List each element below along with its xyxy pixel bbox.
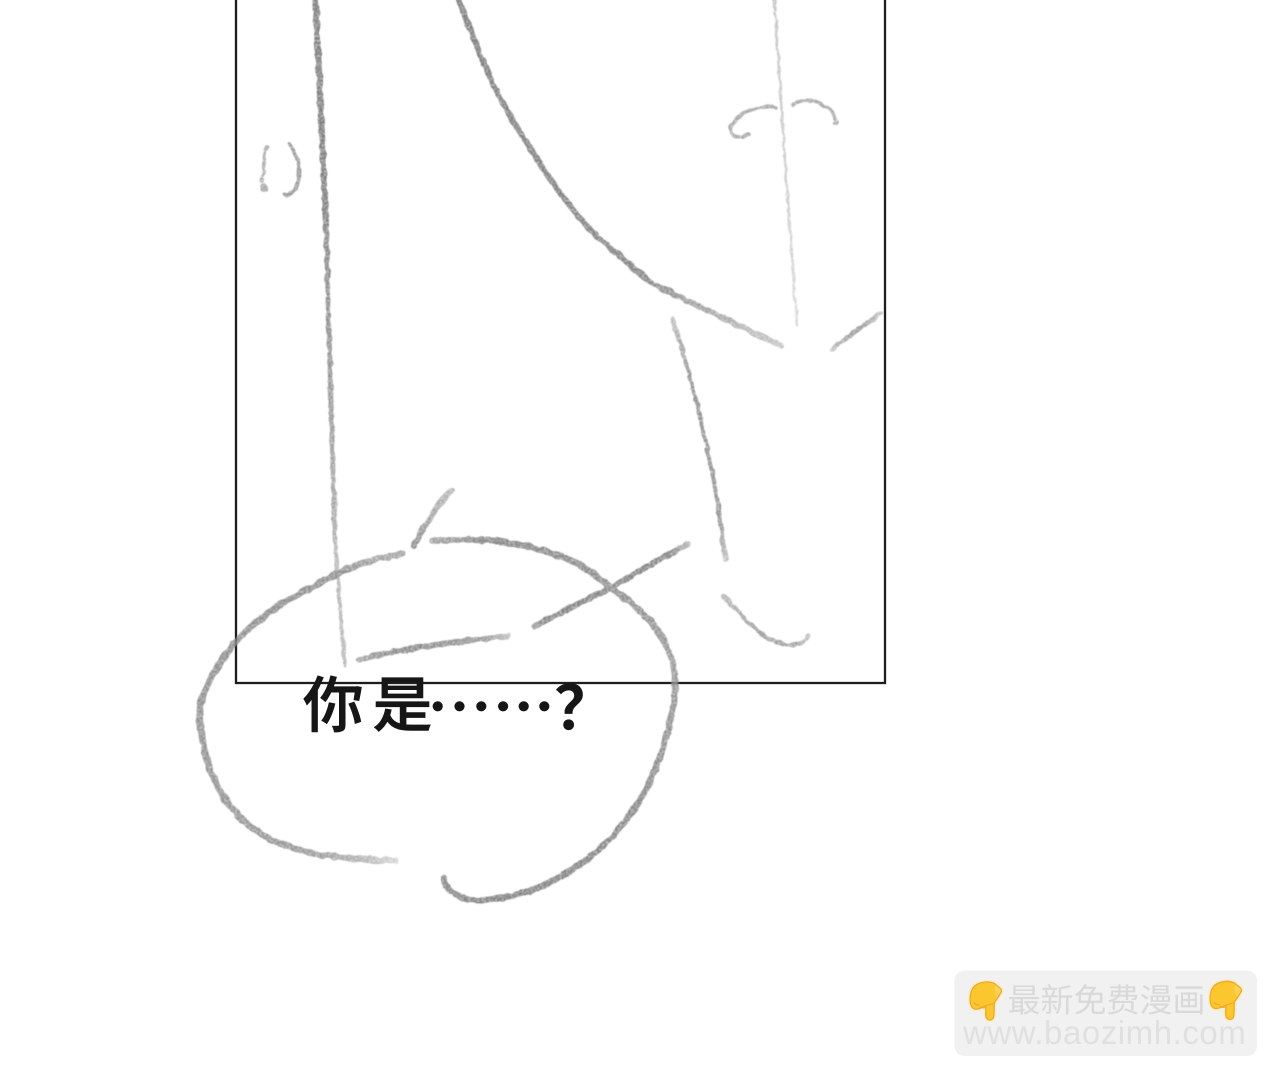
svg-text:www.baozimh.com: www.baozimh.com bbox=[962, 1014, 1246, 1051]
